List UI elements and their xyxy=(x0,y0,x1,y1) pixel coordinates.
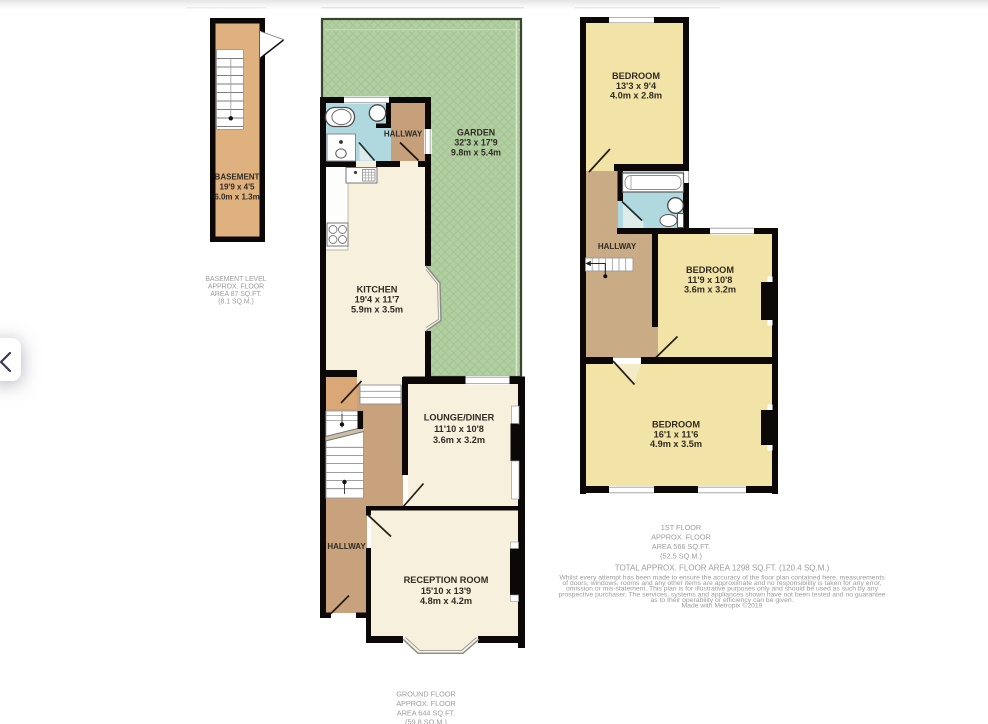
svg-text:TOTAL APPROX. FLOOR AREA 1298: TOTAL APPROX. FLOOR AREA 1298 SQ.FT. (12… xyxy=(615,564,830,573)
svg-text:RECEPTION ROOM: RECEPTION ROOM xyxy=(404,575,489,585)
svg-text:5.9m x 3.5m: 5.9m x 3.5m xyxy=(351,305,403,315)
svg-text:4.9m x 3.5m: 4.9m x 3.5m xyxy=(650,439,702,449)
svg-text:HALLWAY: HALLWAY xyxy=(598,242,637,251)
svg-text:19'9 x 4'5: 19'9 x 4'5 xyxy=(220,183,255,192)
svg-text:BASEMENT LEVEL: BASEMENT LEVEL xyxy=(205,276,266,283)
svg-text:3.6m x 3.2m: 3.6m x 3.2m xyxy=(684,285,736,295)
svg-text:32'3 x 17'9: 32'3 x 17'9 xyxy=(454,138,497,148)
svg-text:13'3 x 9'4: 13'3 x 9'4 xyxy=(616,81,657,91)
svg-text:3.6m x 3.2m: 3.6m x 3.2m xyxy=(433,435,485,445)
svg-text:BEDROOM: BEDROOM xyxy=(686,265,734,275)
svg-text:LOUNGE/DINER: LOUNGE/DINER xyxy=(424,413,495,423)
svg-text:(52.5 SQ.M.): (52.5 SQ.M.) xyxy=(660,552,702,561)
svg-text:APPROX. FLOOR: APPROX. FLOOR xyxy=(396,699,456,708)
svg-text:GARDEN: GARDEN xyxy=(457,128,495,138)
svg-text:1ST FLOOR: 1ST FLOOR xyxy=(661,523,701,532)
svg-text:(8.1 SQ.M.): (8.1 SQ.M.) xyxy=(218,299,254,306)
svg-text:(59.8 SQ.M.): (59.8 SQ.M.) xyxy=(405,718,447,724)
svg-text:4.0m x 2.8m: 4.0m x 2.8m xyxy=(610,91,662,101)
svg-text:APPROX. FLOOR: APPROX. FLOOR xyxy=(208,284,264,291)
svg-text:AREA 87 SQ.FT.: AREA 87 SQ.FT. xyxy=(210,291,261,298)
svg-text:AREA 644 SQ.FT.: AREA 644 SQ.FT. xyxy=(397,709,455,718)
svg-text:11'10 x 10'8: 11'10 x 10'8 xyxy=(434,424,484,434)
svg-text:Made with Metropix ©2019: Made with Metropix ©2019 xyxy=(682,602,763,610)
svg-text:11'9 x 10'8: 11'9 x 10'8 xyxy=(688,275,733,285)
svg-text:AREA 566 SQ.FT.: AREA 566 SQ.FT. xyxy=(652,542,710,551)
svg-text:BASEMENT: BASEMENT xyxy=(215,173,260,182)
svg-text:9.8m x 5.4m: 9.8m x 5.4m xyxy=(451,148,501,158)
svg-text:GROUND FLOOR: GROUND FLOOR xyxy=(396,690,456,699)
svg-text:BEDROOM: BEDROOM xyxy=(652,420,700,430)
svg-text:BEDROOM: BEDROOM xyxy=(612,71,660,81)
svg-text:19'4 x 11'7: 19'4 x 11'7 xyxy=(355,295,400,305)
svg-text:16'1 x 11'6: 16'1 x 11'6 xyxy=(654,429,699,439)
svg-text:APPROX. FLOOR: APPROX. FLOOR xyxy=(651,533,711,542)
svg-text:15'10 x 13'9: 15'10 x 13'9 xyxy=(421,586,471,596)
svg-text:HALLWAY: HALLWAY xyxy=(327,542,366,551)
svg-text:4.8m x 4.2m: 4.8m x 4.2m xyxy=(420,596,472,606)
svg-text:6.0m x 1.3m: 6.0m x 1.3m xyxy=(214,193,259,202)
svg-text:KITCHEN: KITCHEN xyxy=(357,285,398,295)
svg-text:HALLWAY: HALLWAY xyxy=(384,130,423,139)
